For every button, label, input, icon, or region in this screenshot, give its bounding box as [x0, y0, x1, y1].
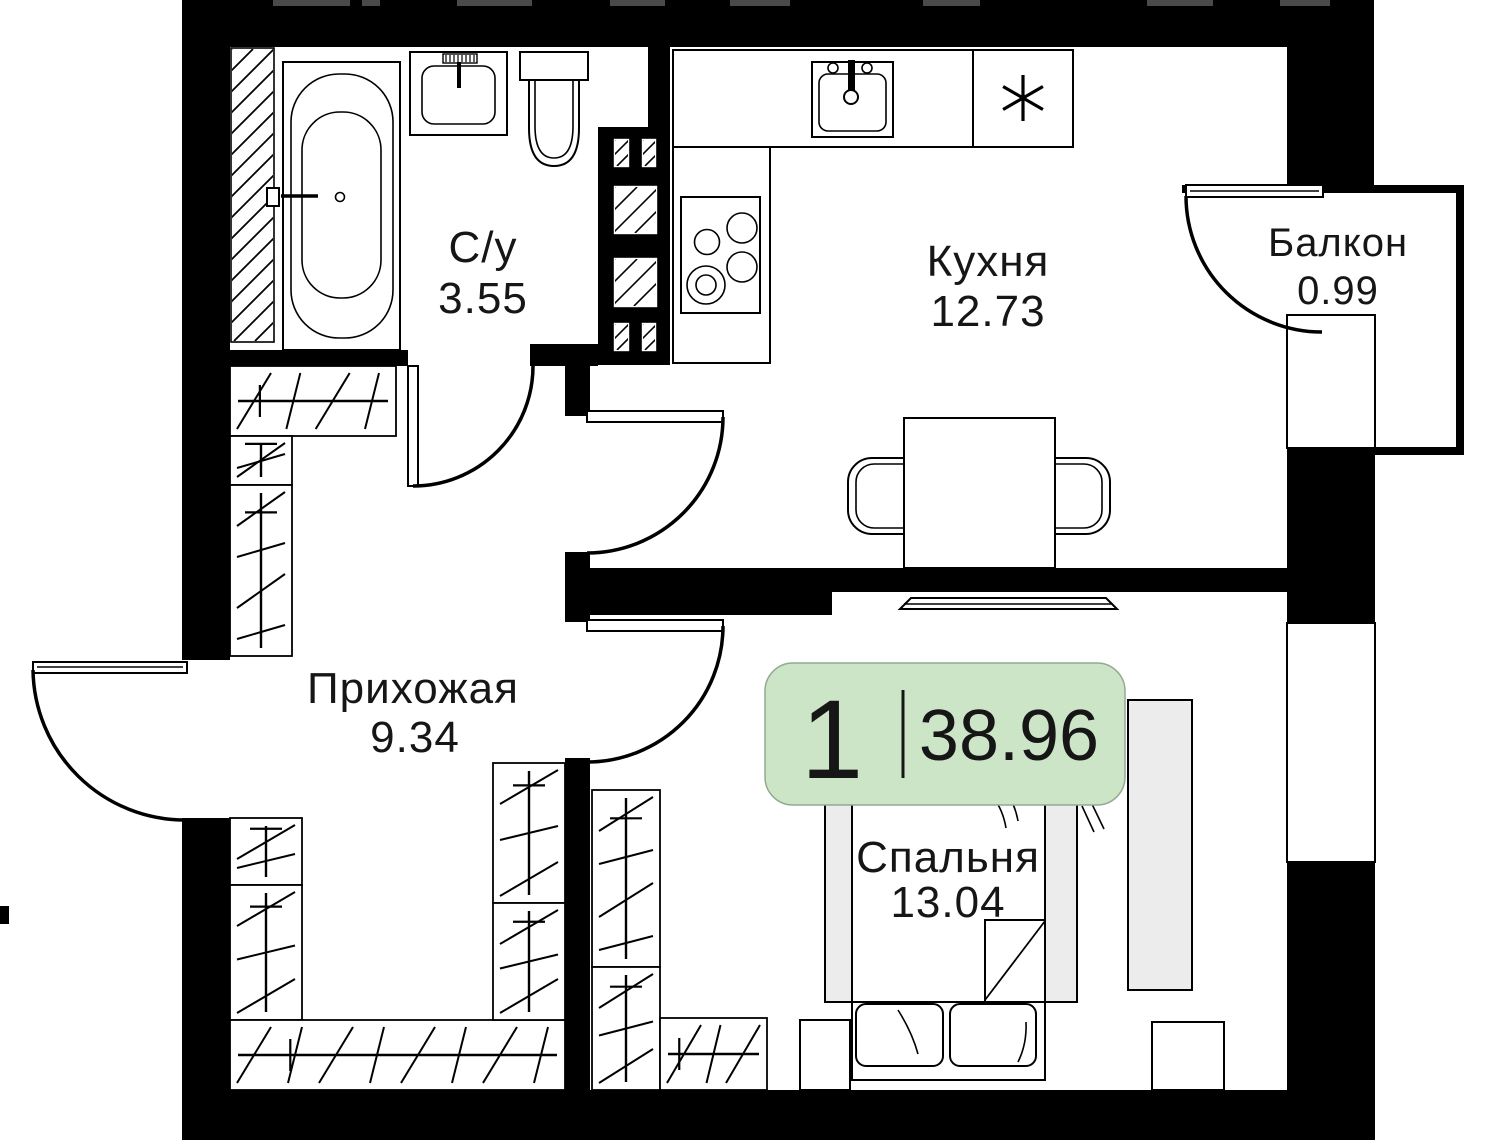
bedroom-door-leaf	[587, 620, 723, 631]
balcony-area: 0.99	[1297, 269, 1379, 313]
outside-fragment	[0, 906, 9, 924]
bathroom-door-leaf	[408, 366, 418, 486]
balcony-name: Балкон	[1268, 221, 1408, 265]
wall-right-mid	[1287, 448, 1375, 623]
bathtub	[267, 62, 400, 350]
hallway-area: 9.34	[370, 713, 460, 762]
dining-table	[904, 418, 1055, 568]
wardrobe	[493, 763, 565, 903]
floor-plan-drawing: С/у 3.55	[0, 0, 1500, 1140]
wall-left-upper	[182, 0, 230, 660]
kitchen-area: 12.73	[930, 287, 1045, 336]
vent-shaft-block	[598, 127, 670, 365]
wardrobe	[660, 1018, 767, 1090]
faucet-grille	[443, 54, 477, 63]
bathroom-door-arc	[413, 366, 533, 486]
wall-left-lower	[182, 818, 230, 1092]
dining-set	[848, 418, 1110, 568]
wardrobe	[230, 818, 302, 885]
nightstand-right	[1152, 1022, 1224, 1090]
floor-plan: С/у 3.55	[0, 0, 1500, 1140]
room-label-hallway: Прихожая 9.34	[307, 664, 519, 762]
wardrobe	[230, 885, 302, 1020]
apartment-badge: 1 38.96	[765, 663, 1125, 805]
stove	[681, 197, 760, 313]
wall-hall-mid	[565, 552, 590, 622]
wardrobe	[230, 485, 292, 656]
badge-total-area: 38.96	[919, 696, 1099, 776]
toilet	[520, 52, 588, 166]
wardrobe	[230, 436, 292, 485]
tv	[900, 598, 1117, 609]
bedroom-area: 13.04	[890, 878, 1005, 927]
wall-bathroom-bottom-right	[530, 344, 598, 366]
kitchen-door-leaf	[587, 411, 723, 422]
hallway: Прихожая 9.34	[33, 366, 767, 1090]
wardrobe	[230, 1020, 565, 1090]
pillow-right	[950, 1004, 1036, 1066]
washbasin	[410, 52, 507, 135]
wall-kitchen-bedroom-divider	[587, 568, 1287, 592]
wardrobe	[493, 903, 565, 1020]
wall-top	[182, 0, 1374, 47]
entrance-door-arc	[33, 670, 185, 820]
faucet-grille-rect	[443, 54, 477, 63]
wall-hall-lower	[565, 758, 590, 1092]
kitchen-name: Кухня	[927, 237, 1050, 286]
wardrobes	[230, 366, 767, 1090]
wall-bathroom-bottom-left	[230, 350, 408, 366]
bathroom-name: С/у	[449, 223, 518, 272]
wall-right-top	[1287, 0, 1374, 185]
wardrobe	[592, 967, 660, 1090]
room-label-bathroom: С/у 3.55	[438, 223, 528, 323]
wall-kitchen-left-top	[648, 47, 670, 129]
room-label-kitchen: Кухня 12.73	[927, 237, 1050, 336]
duvet-fold	[985, 920, 1045, 1002]
balcony: Балкон 0.99	[1182, 185, 1460, 451]
wall-bedroom-top-left	[587, 592, 832, 615]
nightstand-left	[800, 1020, 850, 1090]
bedroom-name: Спальня	[856, 833, 1040, 882]
wardrobe	[230, 366, 396, 436]
balcony-parapet	[1287, 315, 1375, 448]
wall-hall-kitchen-upper	[565, 366, 590, 416]
wall-right-bottom	[1287, 862, 1375, 1140]
bathroom-area: 3.55	[438, 274, 528, 323]
kitchen-sink	[812, 60, 893, 137]
room-label-balcony: Балкон 0.99	[1268, 221, 1408, 313]
bedroom-door-arc	[587, 626, 723, 762]
wall-bottom	[182, 1090, 1375, 1140]
badge-rooms-count: 1	[801, 677, 863, 802]
bedroom-wardrobe	[1128, 700, 1192, 990]
wardrobe	[592, 790, 660, 967]
bedroom-window	[1287, 623, 1375, 862]
kitchen-door-arc	[587, 417, 723, 553]
hallway-name: Прихожая	[307, 664, 519, 713]
